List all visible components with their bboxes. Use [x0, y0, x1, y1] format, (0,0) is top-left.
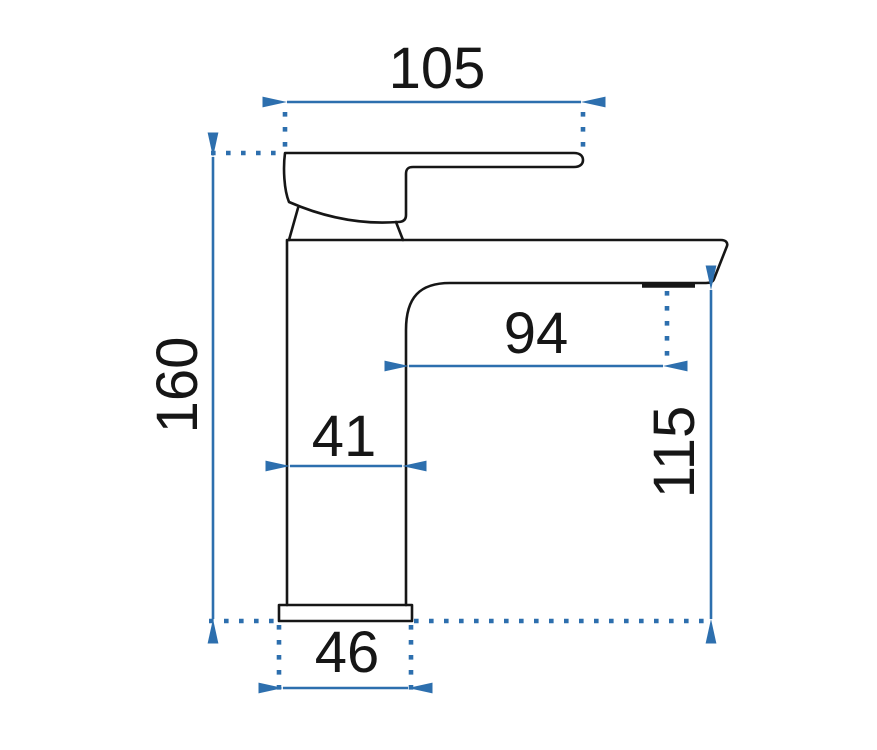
dimension-labels: 105 160 94 41 115 46 — [145, 36, 707, 685]
dim-label-spout-reach: 94 — [504, 301, 569, 366]
dim-label-spout-to-base-height: 115 — [642, 406, 707, 498]
faucet-outline — [279, 153, 727, 621]
faucet-base-plate — [279, 605, 412, 621]
faucet-neck-left-edge — [289, 208, 298, 240]
drawing-canvas: 105 160 94 41 115 46 — [0, 0, 877, 750]
dim-label-body-width: 41 — [312, 404, 377, 469]
faucet-dimension-drawing: 105 160 94 41 115 46 — [0, 0, 877, 750]
faucet-neck-right-edge — [396, 222, 403, 240]
dim-label-handle-top-width: 105 — [389, 36, 486, 101]
extension-lines — [209, 112, 712, 697]
faucet-handle-outline — [284, 153, 583, 223]
dim-label-overall-height: 160 — [145, 337, 210, 434]
dim-label-base-width: 46 — [315, 620, 380, 685]
